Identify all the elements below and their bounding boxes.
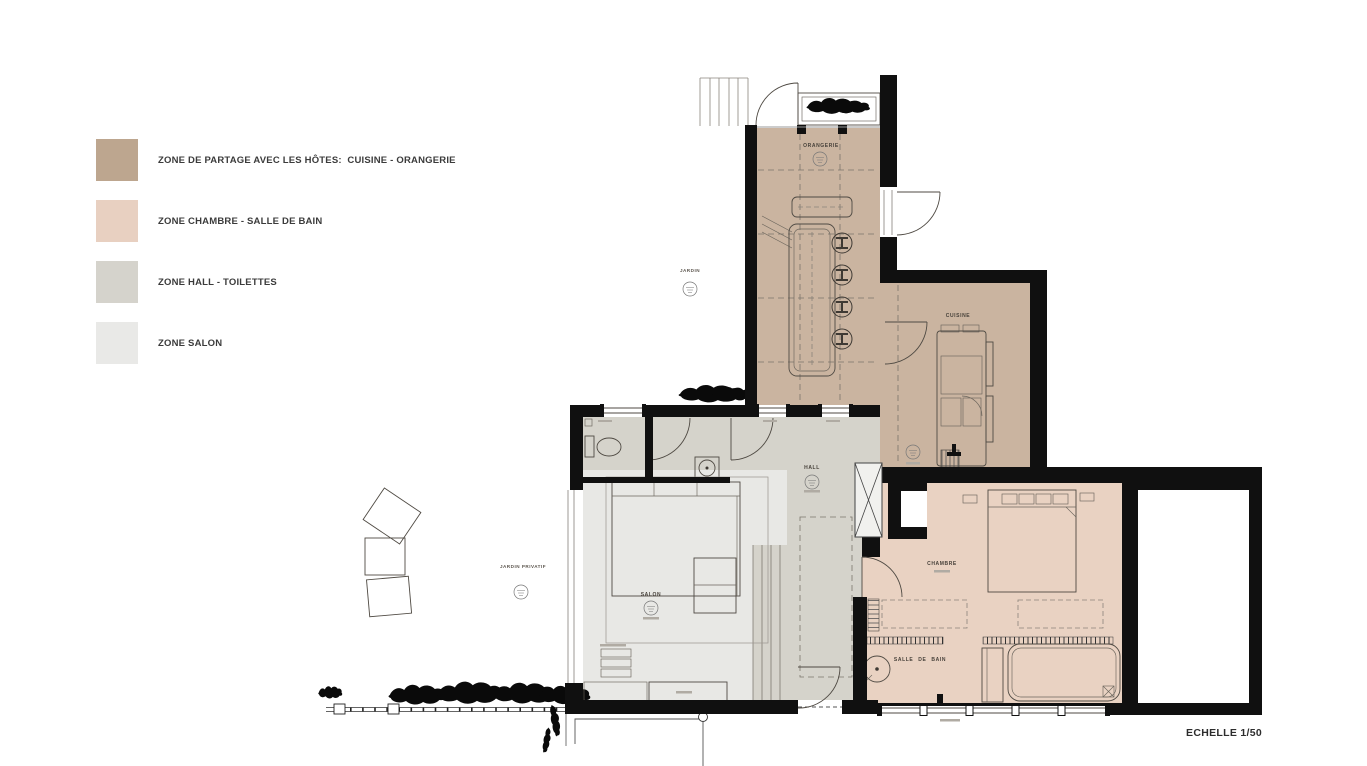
tile-border: [867, 637, 943, 644]
faucet-stem: [952, 444, 956, 454]
entrance-door-arc: [756, 83, 798, 125]
floor-plan-drawing: ORANGERIE CUISINE HALL SALON CHAMBRE SAL…: [0, 0, 1367, 766]
wall: [1030, 283, 1047, 473]
hedge: [318, 682, 590, 705]
label-salon: SALON: [641, 592, 662, 598]
cuisine-floor: [880, 283, 1030, 467]
label-salle-de-bain: SALLE DE BAIN: [894, 657, 946, 663]
glazed-bay: [567, 490, 575, 683]
wall: [862, 537, 880, 557]
floor-plan-page: ZONE DE PARTAGE AVEC LES HÔTES: CUISINE …: [0, 0, 1367, 766]
chambre-radiator: [868, 599, 879, 631]
label-jardin-privatif: JARDIN PRIVATIF: [500, 564, 546, 569]
label-chambre: CHAMBRE: [927, 561, 957, 567]
corner-plant: [541, 727, 552, 753]
ceiling-symbol-jardin-privatif: [514, 585, 528, 599]
garden-fence: [326, 704, 572, 714]
wall: [565, 700, 798, 714]
label-cuisine: CUISINE: [946, 313, 971, 319]
label-orangerie: ORANGERIE: [803, 143, 839, 149]
wall: [853, 597, 867, 703]
ceiling-symbol-jardin: [683, 282, 697, 296]
wall: [1122, 483, 1262, 490]
wall-stub: [937, 694, 943, 703]
tile-border: [983, 637, 1113, 644]
garden-lounge-set: [363, 488, 421, 617]
window: [818, 404, 853, 417]
wall: [570, 405, 583, 490]
wall: [745, 125, 757, 405]
side-door: [880, 190, 940, 235]
wall: [1122, 483, 1138, 703]
wall: [880, 270, 1047, 283]
label-hall: HALL: [804, 465, 820, 471]
window-band: [877, 705, 1110, 722]
partition-wall: [645, 417, 653, 478]
window: [600, 404, 646, 417]
orangerie-floor: [757, 128, 880, 405]
wall: [1249, 483, 1262, 703]
wall-stub: [838, 125, 847, 134]
steps-strip: [753, 545, 787, 700]
wall: [880, 75, 897, 187]
shaft-x: [855, 463, 882, 537]
wall-stub: [797, 125, 806, 134]
empty-room-floor: [1138, 490, 1246, 703]
label-jardin: JARDIN: [680, 268, 700, 273]
lounge-chair: [363, 488, 421, 544]
scale-label: ECHELLE 1/50: [1186, 727, 1262, 739]
window: [755, 404, 790, 417]
exterior-stairs: [700, 78, 748, 126]
wall: [855, 467, 1262, 483]
niche: [901, 491, 927, 527]
lounge-chair: [367, 576, 412, 617]
partition-wall: [583, 477, 730, 483]
